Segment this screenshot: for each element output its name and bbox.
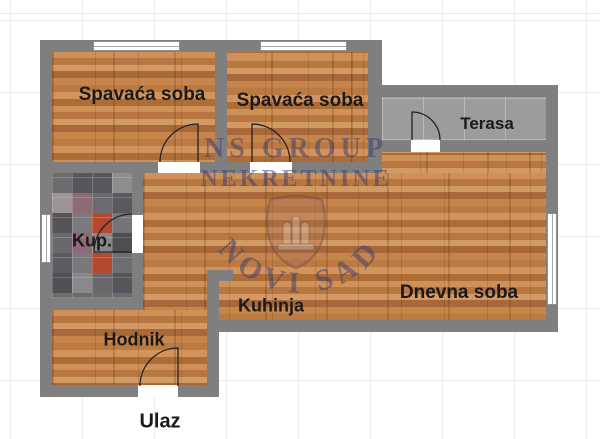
wall-bedroom2-right <box>368 40 382 173</box>
wall-hallway-bottom <box>40 385 219 397</box>
window-living-room <box>547 213 557 305</box>
bathroom-mosaic-tiles <box>52 173 72 193</box>
wall-terrace-bottom <box>382 140 546 152</box>
entrance-label: Ulaz <box>139 411 180 434</box>
door-threshold-entrance <box>138 385 178 397</box>
door-threshold-bedroom-2 <box>250 162 292 173</box>
floorplan-canvas: NS GROUP NEKRETNINE NOVI SAD Spavaća sob… <box>0 0 600 439</box>
room-label-bedroom-2: Spavaća soba <box>237 90 364 112</box>
door-threshold-bedroom-1 <box>158 162 200 173</box>
wall-terrace-top <box>368 85 558 97</box>
room-label-bathroom: Kup. <box>72 231 112 252</box>
wall-kitchen-stub <box>207 270 233 281</box>
window-bathroom <box>41 214 51 263</box>
room-label-living-room: Dnevna soba <box>400 282 518 304</box>
wall-bedrooms-bottom <box>40 162 382 173</box>
door-threshold-bathroom <box>132 215 143 253</box>
window-bedroom-1 <box>93 41 180 51</box>
wall-bottom <box>219 320 558 332</box>
room-label-bedroom-1: Spavaća soba <box>79 84 206 106</box>
room-bedroom-1-floor <box>52 52 215 162</box>
room-label-hallway: Hodnik <box>104 330 165 351</box>
window-bedroom-2 <box>260 41 347 51</box>
room-label-terrace: Terasa <box>460 114 514 134</box>
wall-kitchen-divider <box>207 270 219 397</box>
room-living-upper-floor <box>382 152 546 173</box>
wall-bathroom-bottom <box>40 298 143 310</box>
wall-bedroom-divider <box>215 52 227 162</box>
room-label-kitchen: Kuhinja <box>238 296 304 317</box>
door-threshold-terrace <box>411 140 440 152</box>
